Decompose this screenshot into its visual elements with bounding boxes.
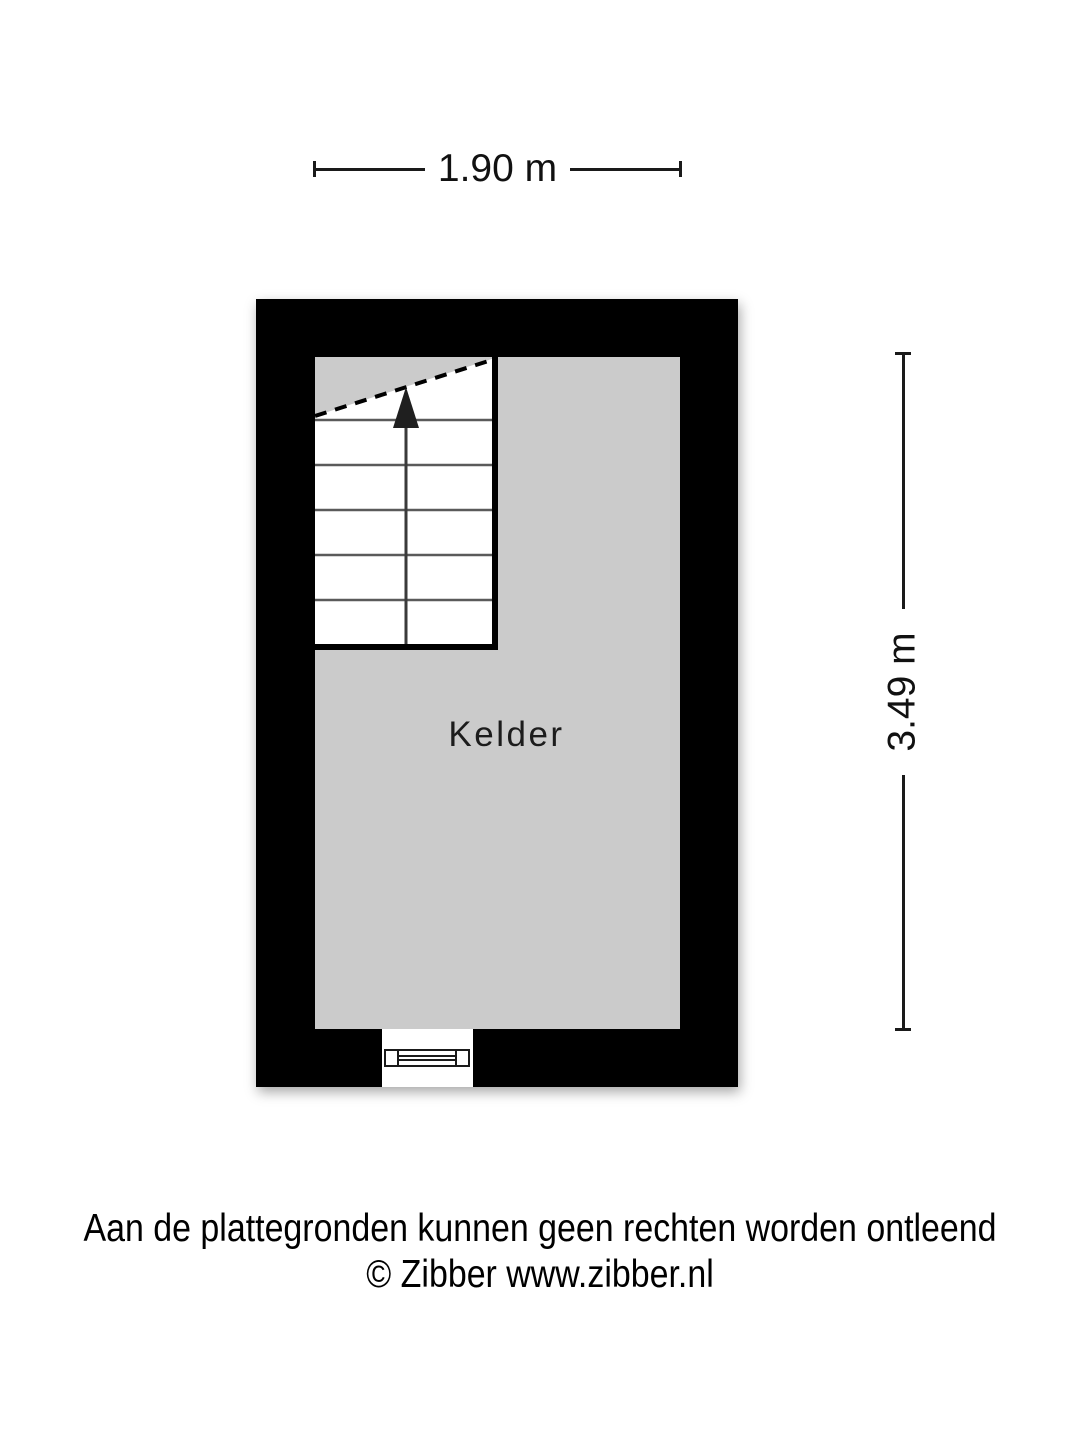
dimension-line-right-segment: [570, 168, 679, 171]
width-dimension: 1.90 m: [313, 150, 682, 188]
dimension-line-top-segment: [902, 355, 905, 609]
disclaimer-text: Aan de plattegronden kunnen geen rechten…: [70, 1206, 1010, 1252]
window-slat: [399, 1055, 455, 1057]
cellar-window: [384, 1049, 470, 1067]
staircase: [315, 357, 498, 650]
height-dimension-label: 3.49 m: [881, 632, 925, 751]
stair-border-right: [492, 357, 498, 650]
page: { "floorplan": { "room": { "label": "Kel…: [0, 0, 1080, 1440]
floorplan-kelder: Kelder: [256, 299, 738, 1087]
window-slat: [399, 1059, 455, 1061]
kelder-floor: Kelder: [315, 357, 680, 1029]
width-dimension-label: 1.90 m: [425, 150, 570, 188]
height-dimension: 3.49 m: [882, 352, 924, 1031]
copyright-text: © Zibber www.zibber.nl: [70, 1252, 1010, 1298]
dimension-tick-bottom: [895, 1028, 911, 1031]
window-frame-left: [397, 1051, 399, 1065]
room-label: Kelder: [333, 715, 680, 755]
wall-opening: [382, 1029, 473, 1087]
footer: Aan de plattegronden kunnen geen rechten…: [70, 1206, 1010, 1298]
height-dimension-label-wrap: 3.49 m: [882, 609, 924, 775]
dimension-line-left-segment: [316, 168, 425, 171]
dimension-tick-right: [679, 161, 682, 177]
dimension-line-bottom-segment: [902, 775, 905, 1029]
stair-border-bottom: [315, 644, 498, 650]
window-frame-right: [455, 1051, 457, 1065]
